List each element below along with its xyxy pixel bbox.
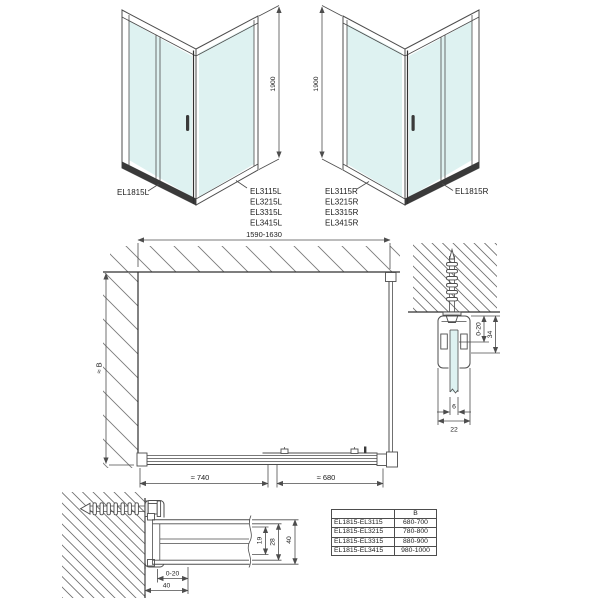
table-header-row: B [332, 510, 437, 519]
table-cell-models: EL1815-EL3315 [332, 537, 395, 546]
door-handle-left [186, 115, 189, 131]
dim-0-20-text: 0-20 [476, 322, 483, 336]
table-row: EL1815-EL3115 680-700 [332, 519, 437, 528]
glass-clamp [441, 334, 448, 349]
table-row: EL1815-EL3415 980-1000 [332, 546, 437, 555]
table-header-b: B [395, 510, 437, 519]
table-row: EL1815-EL3315 880-900 [332, 537, 437, 546]
size-table: B EL1815-EL3115 680-700 EL1815-EL3215 78… [331, 509, 437, 556]
plan-door-handle [364, 447, 366, 454]
panel-model-label: EL3215L [250, 198, 283, 207]
glass-pane-section [450, 330, 458, 393]
dim-28-text: 28 [270, 538, 277, 546]
plan-bottom-dimensions: ≈ 740 ≈ 680 [140, 464, 383, 488]
door-model-label-right: EL1815R [455, 187, 489, 196]
plan-dim-680-text: ≈ 680 [317, 473, 336, 482]
table-cell-models: EL1815-EL3215 [332, 528, 395, 537]
plan-track-end-cap-right [387, 452, 398, 467]
panel-model-label: EL3315R [325, 208, 359, 217]
plan-wall-bracket [386, 273, 397, 282]
dim-22-text: 22 [450, 427, 458, 434]
table-cell-b: 680-700 [395, 519, 437, 528]
dim-19-text: 19 [257, 537, 264, 545]
detail-h-bottom-dimensions: 0-20 40 [145, 567, 188, 594]
panel-model-label: EL3415R [325, 219, 359, 228]
table-cell-b: 880-900 [395, 537, 437, 546]
iso-view-right: 1900 EL3115R EL3215R EL3315R EL3415R EL1… [313, 6, 489, 228]
panel-model-label: EL3215R [325, 198, 359, 207]
height-dimension-right: 1900 [313, 6, 342, 170]
panel-model-label: EL3115L [250, 187, 282, 196]
height-dimension-left: 1900 [259, 6, 279, 170]
plan-door-track [137, 447, 398, 468]
plan-view: 1590-1630 ≈ B [95, 230, 401, 488]
height-dim-text-left: 1900 [270, 76, 277, 91]
dim-40-text: 40 [163, 583, 171, 590]
plan-roller [351, 449, 358, 454]
table-cell-models: EL1815-EL3415 [332, 546, 395, 555]
plan-depth-dim-text: ≈ B [95, 362, 104, 373]
wall-profile-detail-horizontal: 0-20 40 19 28 40 [62, 492, 299, 598]
dim-6-text: 6 [452, 404, 456, 411]
dim-40-right-text: 40 [286, 536, 293, 544]
table-header-models [332, 510, 395, 519]
plan-width-dim-text: 1590-1630 [246, 230, 282, 239]
height-dim-text-right: 1900 [313, 76, 320, 91]
plan-roller [281, 449, 288, 454]
technical-drawing-page: 1900 EL1815L EL3115L EL3215L EL3315L EL3… [0, 0, 600, 600]
dim-34-text: 34 [487, 331, 494, 339]
wall-hatch-top [110, 246, 400, 272]
iso-view-left: 1900 EL1815L EL3115L EL3215L EL3315L EL3… [117, 6, 283, 228]
plan-track-end-cap-left [137, 453, 147, 466]
panel-model-label: EL3315L [250, 208, 283, 217]
table-cell-b: 980-1000 [395, 546, 437, 555]
glass-clamp [461, 334, 468, 349]
table-row: EL1815-EL3215 780-800 [332, 528, 437, 537]
break-line [248, 516, 251, 568]
door-frame-section [153, 516, 252, 568]
table-cell-b: 780-800 [395, 528, 437, 537]
dim-0-20-text: 0-20 [166, 571, 180, 578]
side-panel-model-labels-right: EL3115R EL3215R EL3315R EL3415R [325, 187, 359, 228]
door-handle-right [412, 115, 415, 131]
door-model-label-left: EL1815L [117, 188, 150, 197]
plan-dim-740-text: ≈ 740 [191, 473, 210, 482]
wall-hatch-left [103, 273, 138, 468]
table-cell-models: EL1815-EL3115 [332, 519, 395, 528]
drawing-canvas: 1900 EL1815L EL3115L EL3215L EL3315L EL3… [0, 0, 600, 600]
detail-h-right-dimensions: 19 28 40 [252, 520, 299, 564]
profile-hook [148, 514, 155, 521]
panel-model-label: EL3415L [250, 219, 283, 228]
wall-profile-detail-vertical: 0-20 34 6 22 [408, 243, 500, 434]
panel-model-label: EL3115R [325, 187, 358, 196]
side-panel-model-labels-left: EL3115L EL3215L EL3315L EL3415L [250, 187, 283, 228]
